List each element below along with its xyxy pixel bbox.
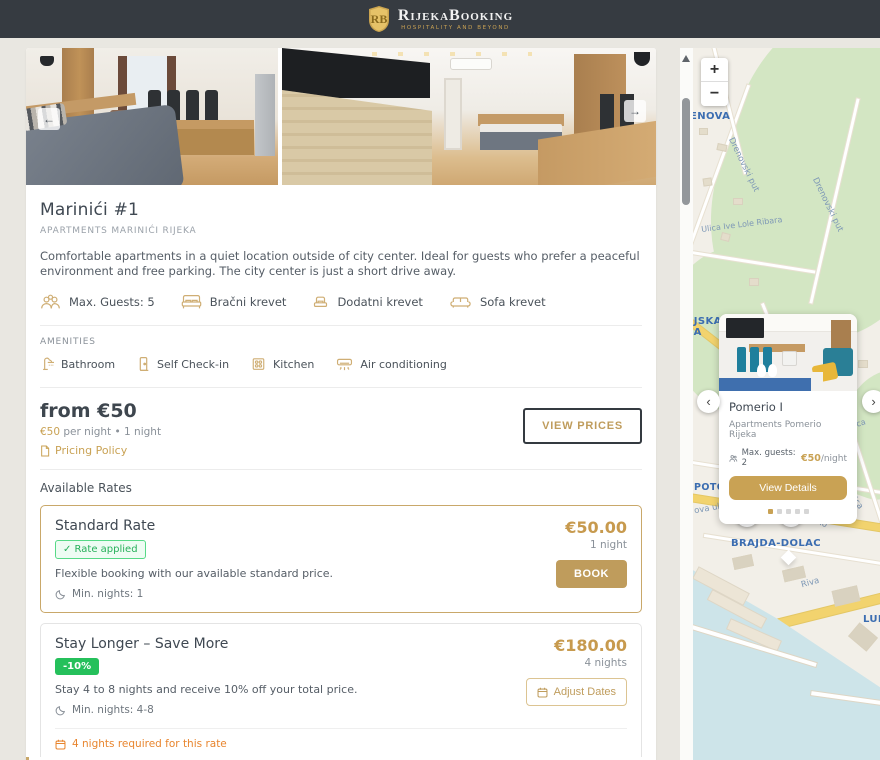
popup-photo-tv <box>726 318 764 338</box>
scrollbar-thumb[interactable] <box>682 98 690 205</box>
per-night-line: €50 per night • 1 night <box>40 426 161 438</box>
brand-logo[interactable]: RB RijekaBooking HOSPITALITY AND BEYOND <box>367 5 513 33</box>
calendar-icon <box>537 687 548 698</box>
photo-pendant-lamp <box>634 52 650 66</box>
pricing-policy-link[interactable]: Pricing Policy <box>40 444 161 457</box>
pagination-dot[interactable] <box>795 509 800 514</box>
self-checkin-icon <box>137 356 150 372</box>
divider <box>40 469 642 470</box>
carousel-next-button[interactable]: → <box>624 100 646 122</box>
pagination-dot[interactable] <box>804 509 809 514</box>
view-details-button[interactable]: View Details <box>729 476 847 500</box>
zoom-in-button[interactable]: + <box>701 58 728 82</box>
map-area-label: BRAJDA-DOLAC <box>731 538 821 549</box>
per-night-price: €50 <box>40 426 60 438</box>
amenity-label: Self Check-in <box>157 358 229 371</box>
amenity-kitchen: Kitchen <box>251 356 314 372</box>
map-area-label: NJSKAGA <box>693 316 722 338</box>
map-building <box>732 554 754 570</box>
popup-subtitle: Apartments Pomerio Rijeka <box>729 420 847 440</box>
map-building <box>733 198 743 205</box>
listing-subtitle: APARTMENTS MARINIĆI RIJEKA <box>40 226 642 236</box>
map-zoom-control: + − <box>701 58 728 106</box>
min-nights: Min. nights: 1 <box>55 588 333 600</box>
feature-extra-bed: Dodatni krevet <box>312 294 423 310</box>
view-prices-button[interactable]: VIEW PRICES <box>523 408 642 444</box>
popup-photo-stool <box>737 347 746 373</box>
document-icon <box>40 445 50 457</box>
map-building <box>702 177 712 186</box>
min-nights: Min. nights: 4-8 <box>55 704 357 716</box>
rate-price: €50.00 <box>565 518 627 537</box>
double-bed-icon <box>181 294 202 310</box>
min-nights-label: Min. nights: 1 <box>72 588 143 600</box>
feature-label: Sofa krevet <box>480 295 546 309</box>
pricing-policy-label: Pricing Policy <box>55 444 127 457</box>
air-conditioning-icon <box>336 356 353 372</box>
scrollbar-up-arrow[interactable] <box>682 55 690 62</box>
rate-name: Stay Longer – Save More <box>55 636 357 652</box>
kitchen-icon <box>251 356 266 372</box>
feature-label: Max. Guests: 5 <box>69 295 155 309</box>
amenity-bathroom: Bathroom <box>40 356 115 372</box>
photo-door <box>444 78 462 150</box>
rate-name: Standard Rate <box>55 518 333 534</box>
listing-body: Marinići #1 APARTMENTS MARINIĆI RIJEKA C… <box>26 185 656 760</box>
pagination-dot[interactable] <box>777 509 782 514</box>
available-rates-title: Available Rates <box>40 481 642 495</box>
svg-text:RB: RB <box>371 12 388 26</box>
moon-icon <box>55 589 66 600</box>
carousel-photo-2[interactable] <box>282 48 656 185</box>
listing-description: Comfortable apartments in a quiet locati… <box>40 249 642 279</box>
sofa-icon <box>449 294 472 310</box>
amenity-self-checkin: Self Check-in <box>137 356 229 372</box>
photo-spotlights <box>372 52 532 56</box>
popup-pagination-dots <box>729 509 847 516</box>
map-area-label: ENOVA <box>693 111 730 122</box>
rate-description: Flexible booking with our available stan… <box>55 567 333 580</box>
popup-max-guests: Max. guests: 2 <box>729 448 801 468</box>
popup-photo-washer <box>782 351 797 366</box>
popup-guests-label: Max. guests: 2 <box>742 448 801 468</box>
moon-icon <box>55 705 66 716</box>
amenities-title: AMENITIES <box>40 337 642 347</box>
map-popup-card[interactable]: Pomerio I Apartments Pomerio Rijeka Max.… <box>719 314 857 524</box>
popup-prev-button[interactable]: ‹ <box>697 390 720 413</box>
popup-price: €50/night <box>801 453 847 464</box>
amenity-label: Bathroom <box>61 358 115 371</box>
photo-stone-wall <box>282 90 432 185</box>
min-nights-label: Min. nights: 4-8 <box>72 704 154 716</box>
listing-card: ← → Marinići #1 APARTMENTS MARINIĆI RIJE… <box>26 48 656 760</box>
divider <box>40 325 642 326</box>
book-button[interactable]: BOOK <box>556 560 627 588</box>
map-building <box>716 143 727 152</box>
rate-price: €180.00 <box>554 636 627 655</box>
price-summary: from €50 €50 per night • 1 night Pricing… <box>40 400 642 457</box>
shield-logo-icon: RB <box>367 5 391 33</box>
rate-note-label: 4 nights required for this rate <box>72 738 227 750</box>
rate-card-standard[interactable]: Standard Rate ✓ Rate applied Flexible bo… <box>40 505 642 613</box>
map-building <box>699 128 708 135</box>
popup-photo-blanket <box>719 378 811 391</box>
popup-photo-swan-towel <box>768 364 777 377</box>
feature-max-guests: Max. Guests: 5 <box>40 294 155 310</box>
rate-duration: 1 night <box>590 539 627 551</box>
photo-fridge <box>255 74 275 156</box>
rate-description: Stay 4 to 8 nights and receive 10% off y… <box>55 683 357 696</box>
from-price: from €50 <box>40 400 161 422</box>
feature-label: Bračni krevet <box>210 295 287 309</box>
feature-label: Dodatni krevet <box>337 295 423 309</box>
amenity-label: Kitchen <box>273 358 314 371</box>
extra-bed-icon <box>312 294 329 310</box>
adjust-dates-button[interactable]: Adjust Dates <box>526 678 627 706</box>
carousel-prev-button[interactable]: ← <box>38 108 60 130</box>
popup-next-button[interactable]: › <box>862 390 880 413</box>
zoom-out-button[interactable]: − <box>701 82 728 106</box>
guests-icon <box>729 454 738 463</box>
content-scrollbar[interactable] <box>680 48 693 760</box>
popup-body: Pomerio I Apartments Pomerio Rijeka Max.… <box>719 391 857 524</box>
rate-card-stay-longer[interactable]: Stay Longer – Save More -10% Stay 4 to 8… <box>40 623 642 760</box>
feature-double-bed: Bračni krevet <box>181 294 287 310</box>
location-map[interactable]: ENOVA NJSKAGA POTOK BRAJDA-DOLAC LUK Dre… <box>693 48 880 760</box>
pagination-dot[interactable] <box>768 509 773 514</box>
rate-applied-badge: ✓ Rate applied <box>55 540 146 559</box>
photo-carousel: ← → <box>26 48 656 185</box>
popup-photo <box>719 314 857 391</box>
rate-duration: 4 nights <box>585 657 628 669</box>
discount-badge: -10% <box>55 658 99 675</box>
adjust-dates-label: Adjust Dates <box>554 686 616 698</box>
app-header: RB RijekaBooking HOSPITALITY AND BEYOND <box>0 0 880 38</box>
brand-name: RijekaBooking <box>398 8 513 23</box>
amenities-row: Bathroom Self Check-in Kitchen Air condi… <box>40 356 642 372</box>
pagination-dot[interactable] <box>786 509 791 514</box>
divider <box>40 387 642 388</box>
per-night-text: per night • 1 night <box>60 426 161 438</box>
brand-tagline: HOSPITALITY AND BEYOND <box>398 25 513 31</box>
popup-title: Pomerio I <box>729 400 847 414</box>
amenity-label: Air conditioning <box>360 358 446 371</box>
bathroom-icon <box>40 356 54 372</box>
map-building <box>749 278 759 286</box>
guests-icon <box>40 294 61 310</box>
map-building <box>848 622 878 651</box>
rate-requirement-note: 4 nights required for this rate <box>55 728 627 760</box>
map-area-label: LUK <box>863 614 880 625</box>
carousel-photo-1[interactable] <box>26 48 278 185</box>
popup-tail <box>781 550 797 566</box>
calendar-icon <box>55 739 66 750</box>
photo-ac-unit <box>450 58 492 70</box>
features-row: Max. Guests: 5 Bračni krevet Dodatni kre… <box>40 294 642 310</box>
feature-sofa: Sofa krevet <box>449 294 546 310</box>
popup-photo-swan-towel <box>757 364 766 377</box>
amenity-air-conditioning: Air conditioning <box>336 356 446 372</box>
page-title: Marinići #1 <box>40 200 642 220</box>
photo-lamp <box>40 56 54 66</box>
map-building <box>858 360 868 368</box>
